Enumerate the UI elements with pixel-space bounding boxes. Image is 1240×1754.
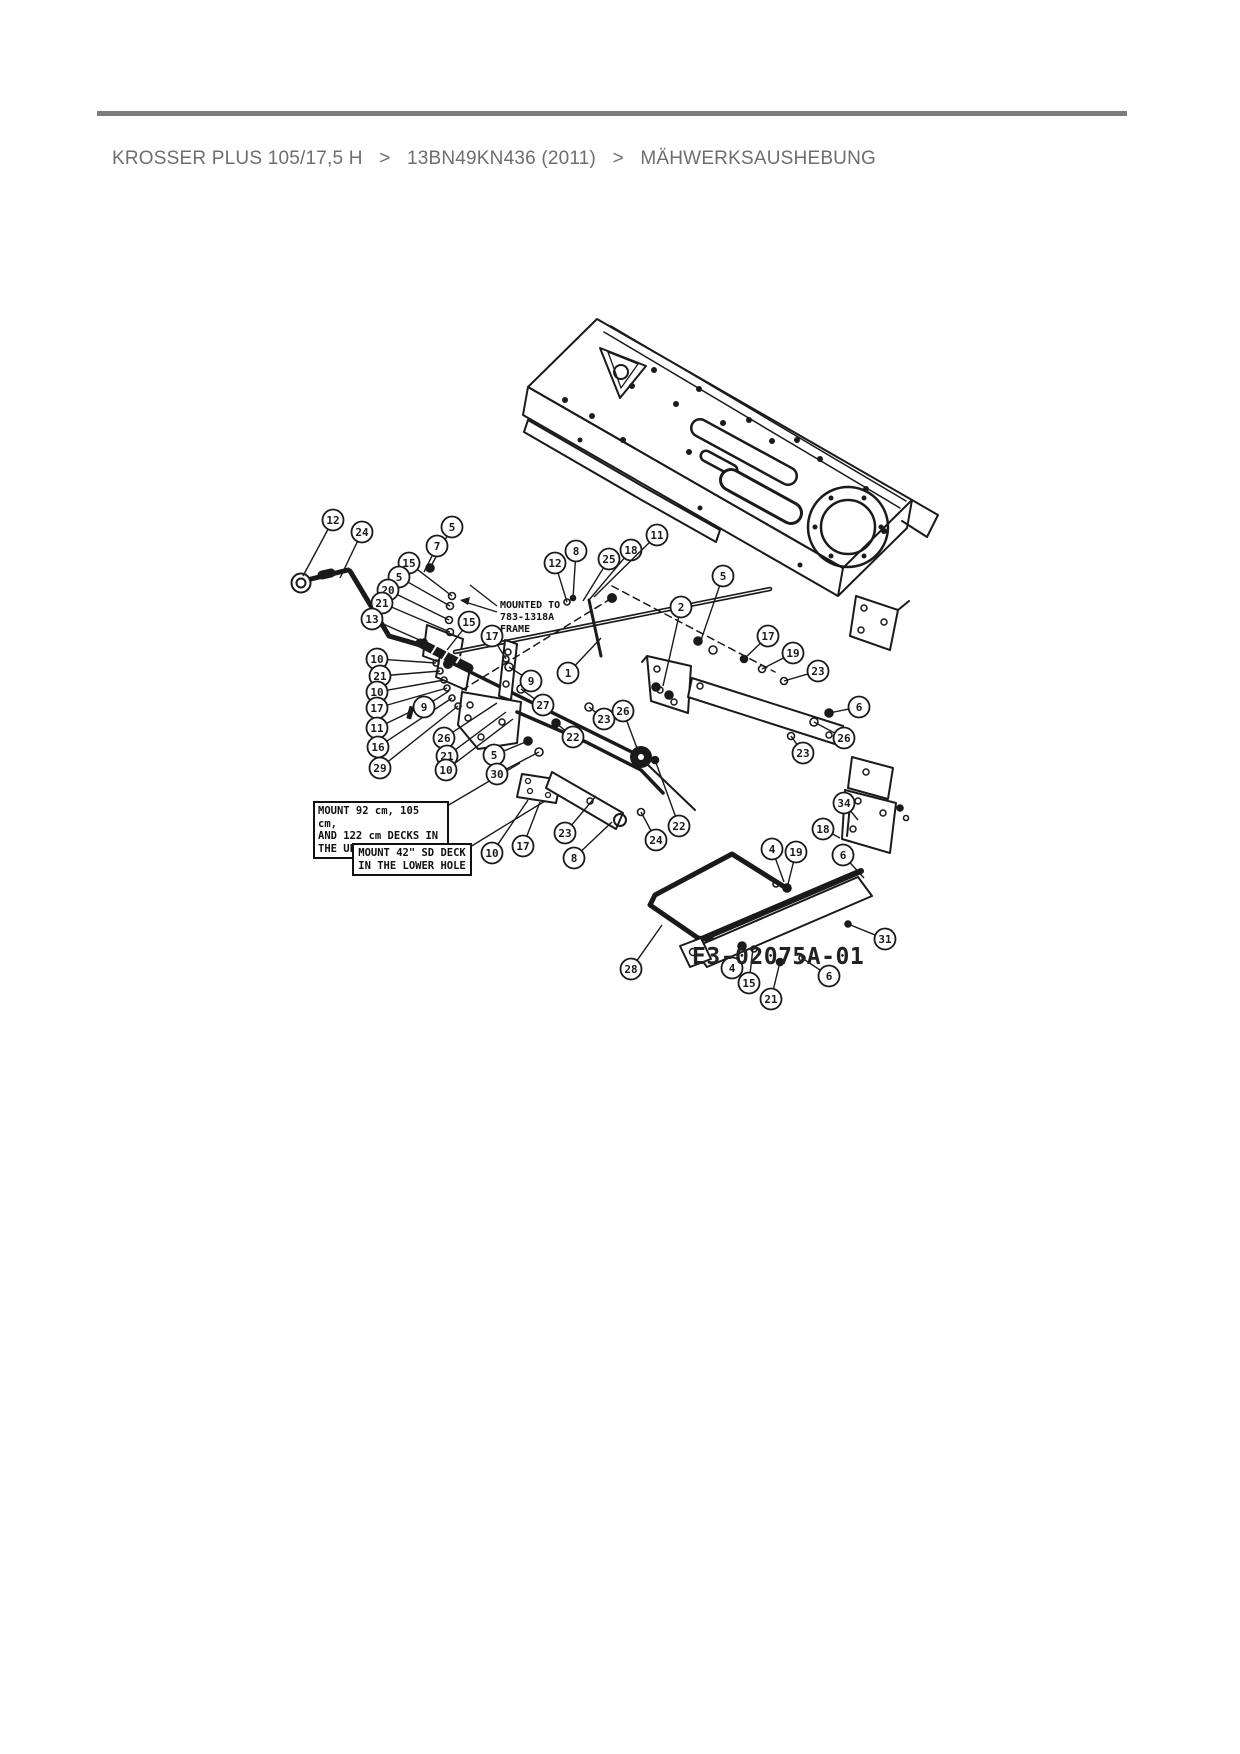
svg-text:25: 25 (602, 553, 615, 566)
part-callout-6: 6 (833, 845, 865, 879)
part-callout-26: 26 (613, 701, 638, 749)
svg-text:12: 12 (326, 514, 339, 527)
part-callout-1: 1 (558, 638, 602, 684)
svg-text:26: 26 (616, 705, 630, 718)
part-callout-6: 6 (829, 697, 870, 718)
part-callout-23: 23 (589, 707, 615, 730)
parts-diagram: 1224571552021131517102110171116299192726… (0, 0, 1240, 1754)
svg-text:12: 12 (548, 557, 561, 570)
svg-text:19: 19 (789, 846, 802, 859)
svg-text:28: 28 (624, 963, 637, 976)
svg-text:5: 5 (720, 570, 727, 583)
svg-text:2: 2 (678, 601, 685, 614)
svg-text:8: 8 (573, 545, 580, 558)
svg-text:30: 30 (490, 768, 503, 781)
part-callout-23: 23 (791, 736, 814, 764)
svg-text:34: 34 (837, 797, 851, 810)
part-callout-17: 17 (513, 802, 541, 857)
svg-text:6: 6 (840, 849, 847, 862)
svg-text:6: 6 (826, 970, 833, 983)
svg-text:26: 26 (437, 732, 451, 745)
diagram-code-label: E3-02075A-01 (692, 944, 864, 970)
svg-text:8: 8 (571, 852, 578, 865)
part-callout-28: 28 (621, 925, 663, 980)
part-callout-18: 18 (813, 819, 841, 840)
svg-text:23: 23 (558, 827, 571, 840)
svg-text:5: 5 (396, 571, 403, 584)
svg-text:17: 17 (761, 630, 774, 643)
svg-text:7: 7 (434, 540, 441, 553)
part-callout-12: 12 (545, 553, 568, 603)
svg-text:15: 15 (462, 616, 475, 629)
svg-text:5: 5 (491, 749, 498, 762)
svg-text:16: 16 (371, 741, 385, 754)
mounted-to-frame-note: MOUNTED TO 783-1318A FRAME (500, 600, 560, 635)
svg-text:23: 23 (811, 665, 824, 678)
svg-text:17: 17 (370, 702, 383, 715)
svg-text:19: 19 (786, 647, 799, 660)
part-callout-8: 8 (566, 541, 587, 599)
part-callout-18: 18 (589, 540, 642, 601)
svg-text:24: 24 (649, 834, 663, 847)
svg-text:4: 4 (769, 843, 776, 856)
part-callout-22: 22 (655, 760, 690, 837)
part-callout-19: 19 (786, 842, 807, 885)
page: { "page": {"background": "#ffffff", "rul… (0, 0, 1240, 1754)
svg-text:23: 23 (597, 713, 610, 726)
svg-text:1: 1 (565, 667, 572, 680)
svg-text:21: 21 (375, 597, 389, 610)
svg-text:31: 31 (878, 933, 892, 946)
svg-text:11: 11 (650, 529, 664, 542)
svg-text:27: 27 (536, 699, 549, 712)
svg-text:10: 10 (370, 653, 383, 666)
svg-text:15: 15 (742, 977, 755, 990)
svg-text:9: 9 (421, 701, 428, 714)
svg-text:10: 10 (485, 847, 498, 860)
svg-text:6: 6 (856, 701, 863, 714)
svg-text:22: 22 (566, 731, 579, 744)
svg-text:18: 18 (816, 823, 829, 836)
svg-text:24: 24 (355, 526, 369, 539)
svg-text:9: 9 (528, 675, 535, 688)
part-callout-27: 27 (521, 689, 554, 716)
svg-text:29: 29 (373, 762, 386, 775)
part-callout-25: 25 (583, 549, 620, 602)
svg-text:11: 11 (370, 722, 384, 735)
lower-hole-note-box: MOUNT 42" SD DECK IN THE LOWER HOLE (352, 843, 472, 876)
part-callout-24: 24 (641, 812, 667, 851)
svg-text:5: 5 (449, 521, 456, 534)
svg-text:17: 17 (485, 630, 498, 643)
svg-text:21: 21 (764, 993, 778, 1006)
svg-text:10: 10 (439, 764, 452, 777)
part-callout-12: 12 (303, 510, 344, 577)
svg-text:17: 17 (516, 840, 529, 853)
part-callout-17: 17 (744, 626, 779, 660)
svg-text:23: 23 (796, 747, 809, 760)
svg-text:22: 22 (672, 820, 685, 833)
svg-text:26: 26 (837, 732, 851, 745)
svg-text:13: 13 (365, 613, 378, 626)
